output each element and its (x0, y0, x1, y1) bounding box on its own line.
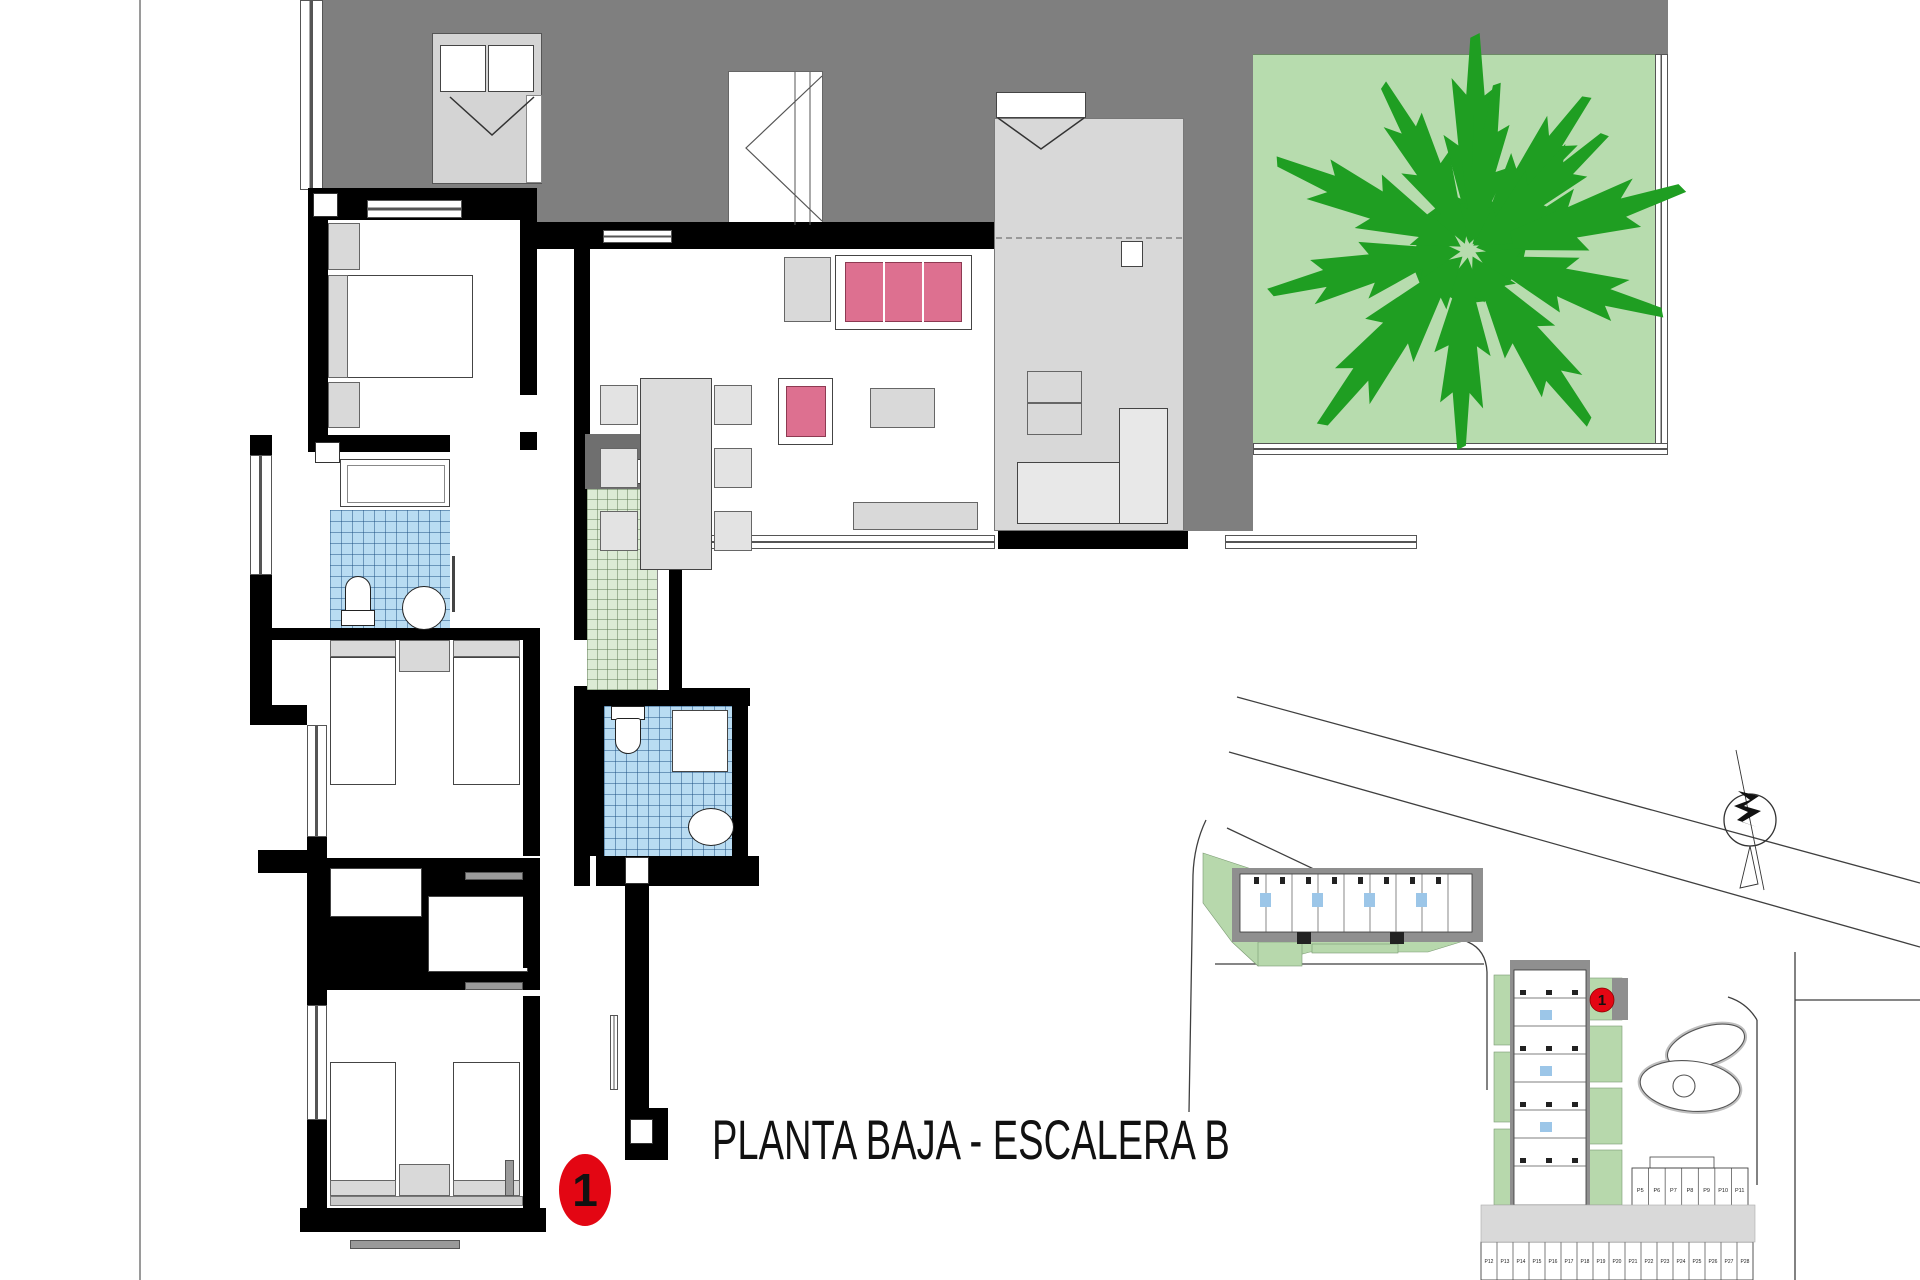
parking-stall-label: P8 (1687, 1188, 1694, 1194)
site-unit-marker: 1 (1590, 988, 1614, 1012)
site-unit-marker-label: 1 (1598, 992, 1606, 1009)
parking-stall-label: P18 (1581, 1259, 1590, 1265)
parking-row: P12P13P14P15P16P17P18P19P20P21P22P23P24P… (1481, 1242, 1753, 1280)
site-driveway (1481, 1205, 1755, 1242)
north-arrow-icon (1724, 750, 1776, 890)
parking-stall-label: P21 (1629, 1259, 1638, 1265)
parking-stall-label: P13 (1501, 1259, 1510, 1265)
parking-stall-label: P25 (1693, 1259, 1702, 1265)
parking-stall-label: P11 (1735, 1188, 1744, 1194)
parking-stall-label: P5 (1637, 1188, 1644, 1194)
unit-marker-label: 1 (572, 1163, 598, 1217)
parking-stall-label: P27 (1725, 1259, 1734, 1265)
parking-stall-label: P16 (1549, 1259, 1558, 1265)
unit-marker-badge: 1 (559, 1154, 611, 1226)
parking-stall-label: P28 (1741, 1259, 1750, 1265)
parking-stall-label: P23 (1661, 1259, 1670, 1265)
parking-stall-label: P26 (1709, 1259, 1718, 1265)
page-title: PLANTA BAJA - ESCALERA B (712, 1112, 1230, 1168)
parking-stall-label: P20 (1613, 1259, 1622, 1265)
parking-stall-label: P19 (1597, 1259, 1606, 1265)
site-building-a (1232, 868, 1483, 944)
parking-stall-label: P10 (1718, 1188, 1728, 1194)
site-path (1612, 978, 1628, 1020)
parking-stall-label: P24 (1677, 1259, 1686, 1265)
parking-stall-label: P15 (1533, 1259, 1542, 1265)
parking-stall-label: P9 (1703, 1188, 1710, 1194)
parking-stall-label: P14 (1517, 1259, 1526, 1265)
pool (1638, 1016, 1750, 1117)
parking-stall-label: P12 (1485, 1259, 1494, 1265)
site-plan-inset: P5P6P7P8P9P10P11 P12P13P14P15P16P17P18P1… (1180, 690, 1920, 1280)
parking-stall-label: P17 (1565, 1259, 1574, 1265)
parking-stall-label: P7 (1670, 1188, 1677, 1194)
floor-plan-page: PLANTA BAJA - ESCALERA B 1 (0, 0, 1920, 1280)
parking-stall-label: P22 (1645, 1259, 1654, 1265)
parking-stall-label: P6 (1653, 1188, 1660, 1194)
